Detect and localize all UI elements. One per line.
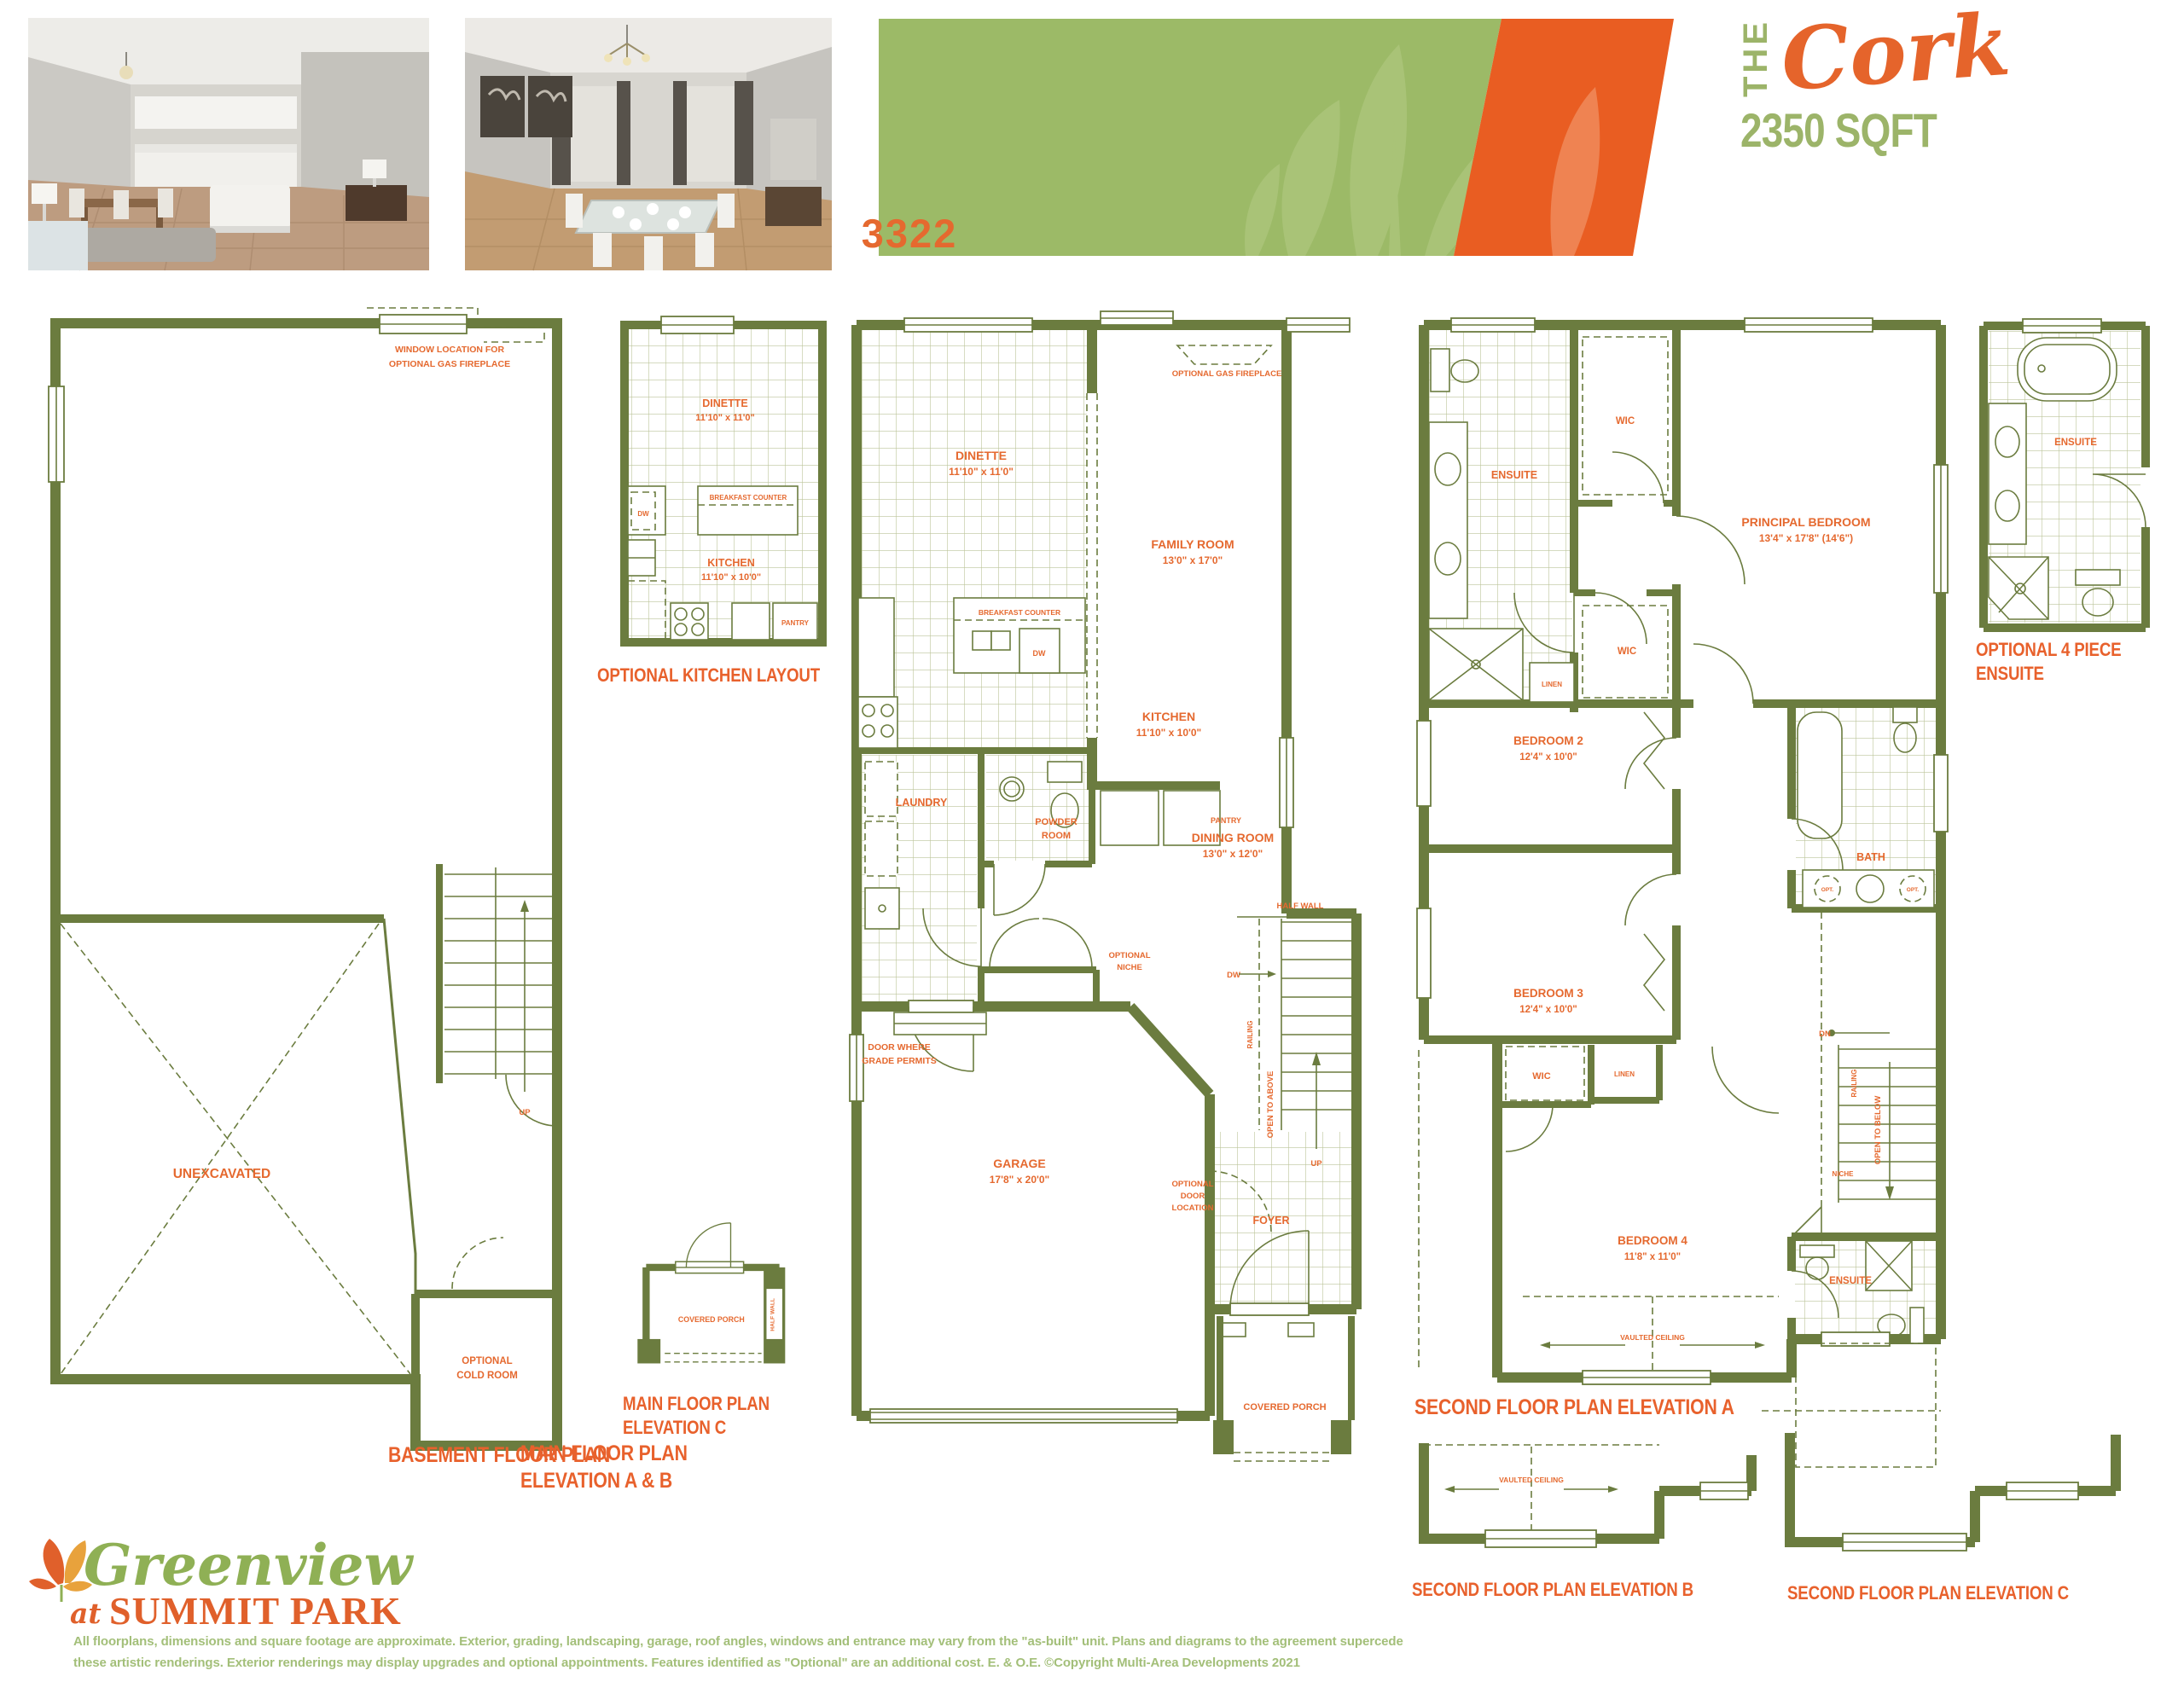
main-c-caption-1: MAIN FLOOR PLAN (623, 1392, 770, 1416)
basement-window-note-1: WINDOW LOCATION FOR (395, 345, 505, 355)
basement-up-label: UP (519, 1108, 531, 1117)
garage-label: GARAGE (993, 1157, 1045, 1170)
linen-top-label: LINEN (1542, 681, 1562, 688)
main-c-caption: MAIN FLOOR PLAN ELEVATION C (623, 1392, 770, 1440)
main-ab-caption: MAIN FLOOR PLAN ELEVATION A & B (520, 1440, 688, 1494)
powder-label-2: ROOM (1042, 831, 1071, 841)
garage-door (870, 1409, 1177, 1423)
optensuite-label: ENSUITE (2054, 438, 2097, 448)
closet-bifold-doors (1644, 712, 1664, 1011)
optkitchen-pantry: PANTRY (781, 619, 810, 627)
logo-summit-park: SUMMIT PARK (109, 1588, 402, 1633)
opt-left-label: OPT. (1821, 887, 1834, 893)
dinette-label: DINETTE (955, 449, 1007, 462)
disclaimer-line-1: All floorplans, dimensions and square fo… (73, 1634, 1403, 1649)
interior-photo-dining (465, 18, 832, 270)
dining-room-dim: 13'0" x 12'0" (1203, 848, 1263, 860)
optional-door-3: LOCATION (1172, 1203, 1214, 1213)
wic-top-label: WIC (1616, 416, 1635, 426)
main-c-caption-2: ELEVATION C (623, 1416, 770, 1440)
basement-stairs (439, 864, 557, 1126)
main-floor-plan-ab: OPTIONAL GAS FIREPLACE DINETTE 11'10" x … (845, 311, 1374, 1471)
second-stairs (1792, 912, 1937, 1237)
optkitchen-kitchen-dim: 11'10" x 10'0" (701, 572, 761, 583)
dn-label: DN (1819, 1029, 1831, 1039)
banner-green-shape (879, 19, 1501, 256)
linen-bottom-label: LINEN (1614, 1070, 1635, 1078)
wic-bottom-label: WIC (1532, 1071, 1550, 1082)
foyer-label: FOYER (1252, 1215, 1289, 1227)
railing-label: RAILING (1246, 1021, 1254, 1049)
main-ab-caption-1: MAIN FLOOR PLAN (520, 1440, 688, 1467)
main-floor-plan-c: COVERED PORCH HALF WALL (621, 1204, 809, 1383)
secondb-vaulted-label: VAULTED CEILING (1499, 1476, 1564, 1484)
optional-door-1: OPTIONAL (1171, 1180, 1213, 1189)
second-floor-plan-a: ENSUITE WIC PRINCIPAL BEDROOM 13'4" x 17… (1412, 311, 1971, 1480)
main-up-label: UP (1310, 1159, 1322, 1169)
optkitchen-dinette-dim: 11'10" x 11'0" (695, 413, 755, 423)
ensuite1-label: ENSUITE (1491, 469, 1537, 481)
main-covered-porch-label: COVERED PORCH (1243, 1402, 1326, 1412)
dw-label: DW (1033, 649, 1046, 658)
bedroom4-dim: 11'8" x 11'0" (1624, 1252, 1681, 1262)
pantry-label: PANTRY (1211, 816, 1241, 825)
dw-stairs-label: DW (1227, 971, 1240, 980)
cold-room-label-2: COLD ROOM (456, 1371, 518, 1381)
dinette-dim: 11'10" x 11'0" (949, 466, 1014, 478)
dining-room-label: DINING ROOM (1192, 831, 1274, 844)
half-wall-label: HALF WALL (1277, 902, 1324, 911)
principal-dim: 13'4" x 17'8" (14'6") (1759, 532, 1853, 544)
family-room-label: FAMILY ROOM (1151, 537, 1234, 551)
vaulted-ceiling-label: VAULTED CEILING (1620, 1333, 1685, 1342)
optkitchen-kitchen: KITCHEN (707, 557, 755, 569)
optkitchen-dw: DW (637, 510, 649, 518)
optional-kitchen-caption: OPTIONAL KITCHEN LAYOUT (597, 664, 820, 687)
bedroom2-label: BEDROOM 2 (1513, 734, 1583, 747)
powder-label-1: POWDER (1035, 817, 1077, 827)
unexcavated-label: UNEXCAVATED (173, 1167, 271, 1181)
optional-ensuite-caption-1: OPTIONAL 4 PIECE (1976, 638, 2121, 662)
open-to-above-label: OPEN TO ABOVE (1266, 1071, 1275, 1139)
optional-door-2: DOOR (1181, 1192, 1205, 1201)
optional-ensuite-caption: OPTIONAL 4 PIECE ENSUITE (1976, 638, 2121, 686)
mainc-covered-porch: COVERED PORCH (678, 1315, 745, 1324)
opt-right-label: OPT. (1907, 887, 1920, 893)
second-floor-plan-b: VAULTED CEILING (1410, 1433, 1769, 1569)
door-grade-1: DOOR WHERE (868, 1042, 931, 1053)
optional-niche-1: OPTIONAL (1108, 951, 1150, 960)
optkitchen-stove (671, 603, 708, 640)
logo-at: at (70, 1597, 102, 1630)
mainc-half-wall: HALF WALL (770, 1298, 776, 1331)
basement-floor-plan: WINDOW LOCATION FOR OPTIONAL GAS FIREPLA… (47, 311, 572, 1471)
laundry-label: LAUNDRY (896, 797, 948, 809)
interior-photo-kitchen (28, 18, 429, 270)
second-c-caption: SECOND FLOOR PLAN ELEVATION C (1787, 1581, 2069, 1605)
main-porch (1213, 1316, 1351, 1461)
wic-mid-label: WIC (1618, 647, 1636, 657)
bath-label: BATH (1856, 851, 1885, 863)
fireplace-label: OPTIONAL GAS FIREPLACE (1172, 369, 1282, 379)
bedroom4-label: BEDROOM 4 (1618, 1234, 1687, 1247)
main-stairs (1237, 917, 1353, 1149)
family-room-dim: 13'0" x 17'0" (1163, 554, 1223, 566)
disclaimer-line-2: these artistic renderings. Exterior rend… (73, 1656, 1300, 1670)
garage-dim: 17'8" x 20'0" (990, 1174, 1049, 1186)
title-sqft: 2350 SQFT (1740, 102, 1937, 158)
bedroom2-dim: 12'4" x 10'0" (1519, 752, 1577, 763)
breakfast-counter-label: BREAKFAST COUNTER (979, 608, 1060, 617)
optional-ensuite-plan: ENSUITE (1973, 314, 2157, 638)
niche-label: NICHE (1833, 1170, 1855, 1178)
second-railing-label: RAILING (1850, 1070, 1858, 1098)
closet-box (1101, 791, 1159, 845)
ensuite2-label: ENSUITE (1829, 1276, 1872, 1286)
kitchen-label: KITCHEN (1142, 710, 1195, 723)
optional-kitchen-plan: DINETTE 11'10" x 11'0" BREAKFAST COUNTER… (614, 311, 832, 652)
second-a-caption: SECOND FLOOR PLAN ELEVATION A (1414, 1394, 1734, 1421)
model-banner: 3322 (879, 19, 1681, 258)
model-number: 3322 (862, 211, 958, 256)
optkitchen-breakfast-counter: BREAKFAST COUNTER (710, 494, 787, 502)
bedroom3-label: BEDROOM 3 (1513, 987, 1583, 1000)
kitchen-dim: 11'10" x 10'0" (1136, 727, 1201, 739)
title-name: Cork (1778, 0, 2013, 110)
optional-fireplace-outline (1177, 345, 1271, 364)
second-floor-plan-c (1757, 1406, 2150, 1559)
bedroom3-dim: 12'4" x 10'0" (1519, 1005, 1577, 1015)
cold-room-label-1: OPTIONAL (462, 1356, 512, 1366)
optional-ensuite-caption-2: ENSUITE (1976, 662, 2121, 686)
principal-label: PRINCIPAL BEDROOM (1741, 515, 1870, 529)
optkitchen-dinette: DINETTE (702, 397, 747, 409)
laundry-fixtures (865, 762, 899, 929)
optional-niche-2: NICHE (1117, 963, 1142, 972)
basement-window-note-2: OPTIONAL GAS FIREPLACE (389, 359, 510, 369)
door-grade-2: GRADE PERMITS (862, 1056, 937, 1066)
main-ab-caption-2: ELEVATION A & B (520, 1467, 688, 1494)
title-the: THE (1737, 24, 1775, 97)
open-to-below-label: OPEN TO BELOW (1873, 1096, 1883, 1165)
second-b-caption: SECOND FLOOR PLAN ELEVATION B (1412, 1578, 1693, 1602)
